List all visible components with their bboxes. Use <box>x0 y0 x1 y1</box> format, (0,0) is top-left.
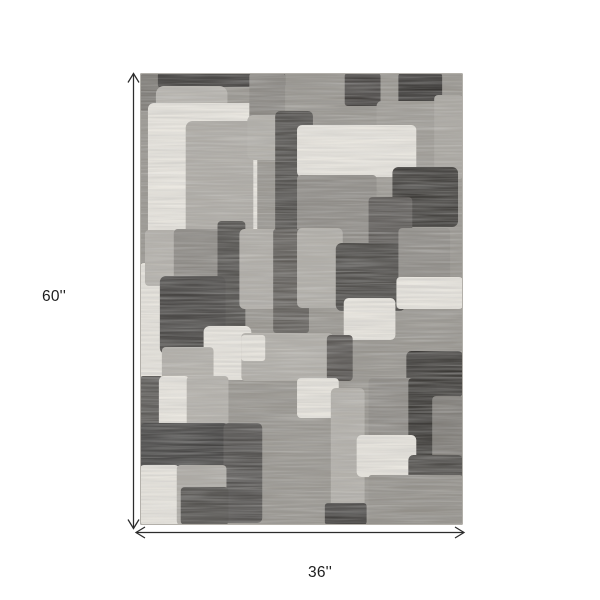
arrowhead-right-icon <box>455 527 464 538</box>
rug-texture-light <box>140 73 463 525</box>
product-dimension-diagram: 60'' 36'' <box>0 0 600 600</box>
rug-image <box>140 73 463 525</box>
arrowhead-left-icon <box>136 527 145 538</box>
arrowhead-down-icon <box>128 520 139 529</box>
width-arrow <box>136 527 464 538</box>
height-arrow <box>128 74 139 529</box>
arrowhead-up-icon <box>128 74 139 83</box>
width-dimension-label: 36'' <box>294 564 346 582</box>
height-dimension-label: 60'' <box>28 288 80 306</box>
